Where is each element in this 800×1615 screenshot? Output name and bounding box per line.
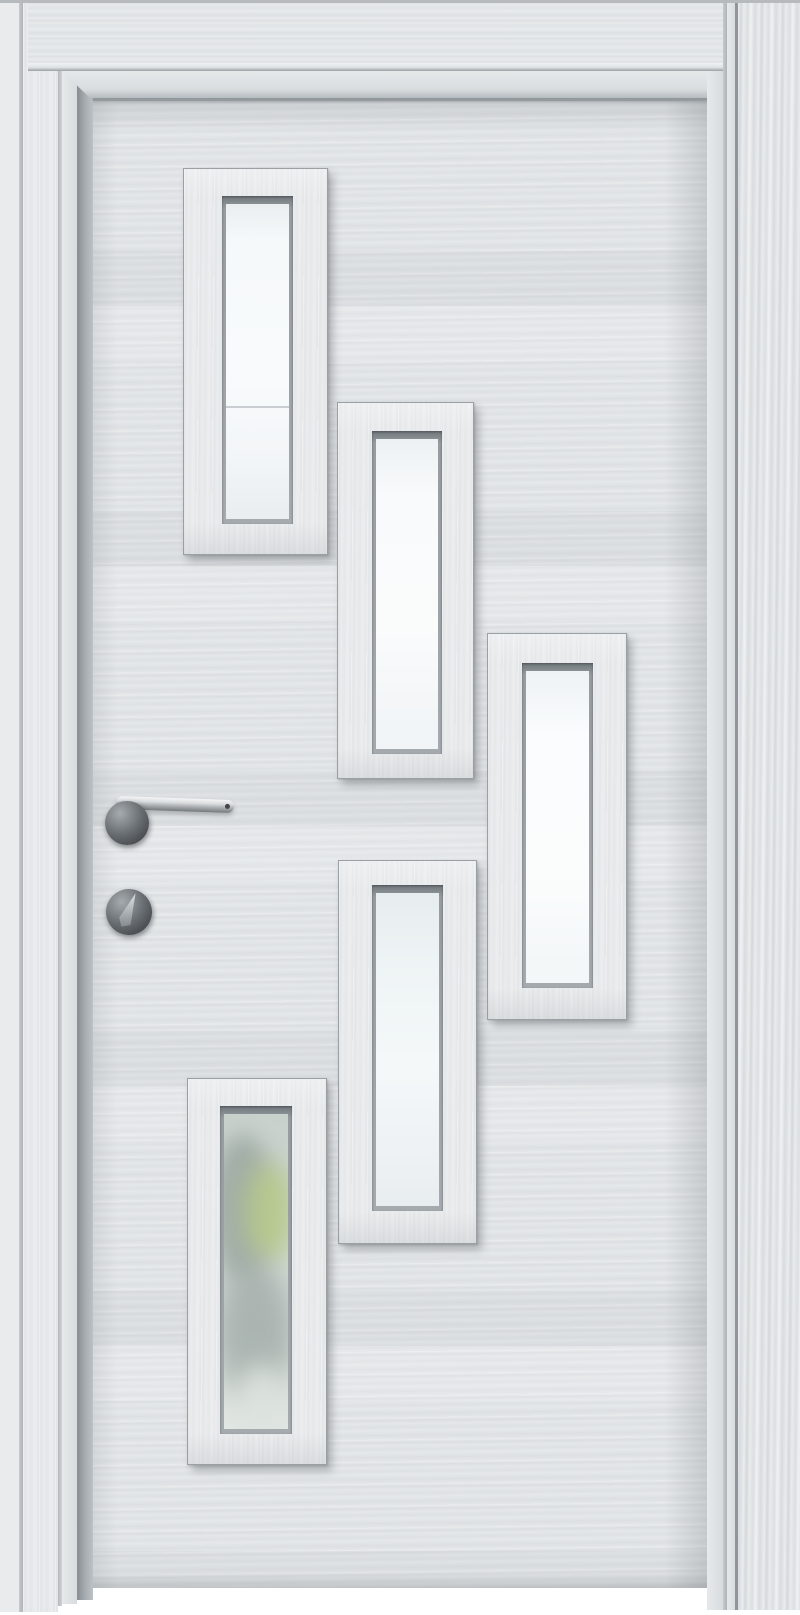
photo-top-edge <box>0 0 800 3</box>
left-wall-edge <box>0 0 19 1612</box>
left-casing <box>23 0 58 1612</box>
left-jamb-face <box>62 0 77 1604</box>
frosted-glass <box>376 439 438 749</box>
top-architrave <box>28 0 734 63</box>
frosted-glass <box>526 671 589 983</box>
right-jamb-outer-face <box>727 0 735 1610</box>
lever-tip-detail <box>225 804 230 809</box>
glazing-bead <box>372 885 443 1211</box>
glass-panel-panel-1-top-left <box>183 168 328 555</box>
top-architrave-groove <box>28 63 734 71</box>
frosted-glass <box>226 204 289 519</box>
glass-panel-panel-2-upper-middle <box>337 402 474 779</box>
foliage-reflection-blob <box>244 1162 288 1262</box>
glazing-bead <box>522 663 593 988</box>
glazing-bead <box>372 431 442 754</box>
door-handle-rose <box>105 801 149 845</box>
right-casing <box>738 0 800 1610</box>
door-product-photo <box>0 0 800 1615</box>
glass-reflection-line <box>226 406 289 408</box>
right-jamb-face <box>707 71 723 1610</box>
frame-head-shadow <box>93 98 707 104</box>
glazing-bead <box>222 196 293 524</box>
glass-panel-panel-3-right <box>487 633 627 1020</box>
frame-head-jamb <box>62 71 722 101</box>
glass-panel-panel-5-bottom-left <box>187 1078 327 1465</box>
glass-panel-panel-4-lower-middle <box>338 860 477 1244</box>
frosted-glass <box>224 1114 288 1429</box>
frosted-glass <box>376 893 439 1206</box>
glazing-bead <box>220 1106 292 1434</box>
left-door-gap-shadow <box>77 63 93 1600</box>
